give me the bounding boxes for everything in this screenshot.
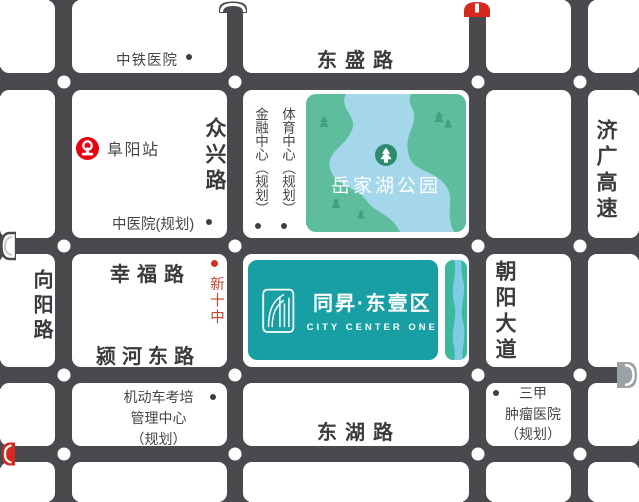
poi-dot-tcm xyxy=(206,219,212,225)
city-block xyxy=(0,383,55,446)
intersection-dot xyxy=(57,368,70,381)
intersection-dot xyxy=(573,447,586,460)
park-lake-graphic xyxy=(306,94,466,232)
poi-vehicle-center-line2: 管理中心 xyxy=(98,408,219,429)
poi-tumor-hospital-line2: 肿瘤医院 xyxy=(497,404,569,425)
toll-gate-dark-icon xyxy=(217,0,249,13)
poi-fuyang-station: 阜阳站 xyxy=(76,136,160,160)
intersection-dot xyxy=(228,239,241,252)
intersection-dot xyxy=(57,239,70,252)
yuejiahu-park: 岳家湖公园 xyxy=(306,94,466,232)
city-block xyxy=(0,0,55,73)
project-name-cn: 同昇·东壹区 xyxy=(307,287,438,316)
intersection-dot xyxy=(471,75,484,88)
city-block xyxy=(0,462,55,502)
poi-vehicle-center-line1: 机动车考培 xyxy=(98,387,219,408)
city-block xyxy=(588,0,639,73)
road-label-jiguang: 济广高速 xyxy=(590,119,620,223)
road-label-dongsheng: 东盛路 xyxy=(317,44,401,73)
road-label-chaoyang: 朝阳大道 xyxy=(489,260,519,364)
poi-dot-sports xyxy=(281,223,287,229)
intersection-dot xyxy=(471,447,484,460)
poi-dot-xinshizhong xyxy=(211,260,218,267)
intersection-dot xyxy=(573,239,586,252)
road-label-xingfu: 幸福路 xyxy=(110,258,191,287)
intersection-dot xyxy=(228,368,241,381)
poi-financial-center: 金融中心（规划） xyxy=(250,107,270,215)
city-block xyxy=(486,0,571,73)
intersection-dot xyxy=(57,75,70,88)
city-block xyxy=(486,90,571,238)
project-name: 同昇·东壹区 CITY CENTER ONE xyxy=(307,287,438,333)
city-block xyxy=(486,462,571,502)
poi-tumor-hospital: 三甲 肿瘤医院 （规划） xyxy=(497,383,569,445)
poi-xinshizhong: 新十中 xyxy=(206,276,227,326)
road-label-zhongxing: 众兴路 xyxy=(199,117,229,195)
poi-tumor-hospital-line3: （规划） xyxy=(497,424,569,445)
poi-vehicle-center: 机动车考培 管理中心 （规划） xyxy=(98,387,219,450)
poi-tcm-hospital: 中医院(规划) xyxy=(112,213,194,234)
city-block xyxy=(588,462,639,502)
intersection-dot xyxy=(573,368,586,381)
poi-sports-center: 体育中心（规划） xyxy=(277,107,297,215)
location-map: 岳家湖公园 同昇·东壹区 CITY CENTER ONE xyxy=(0,0,639,502)
toll-gate-red-top-icon xyxy=(462,0,492,17)
intersection-dot xyxy=(471,239,484,252)
project-logo-box: 同昇·东壹区 CITY CENTER ONE xyxy=(245,257,441,363)
road-label-donghu: 东湖路 xyxy=(317,416,401,445)
toll-gate-red-left-icon xyxy=(0,441,15,467)
poi-fuyang-station-label: 阜阳站 xyxy=(107,136,160,160)
city-block xyxy=(243,462,469,502)
intersection-dot xyxy=(471,368,484,381)
city-block xyxy=(588,383,639,446)
toll-gate-gray-right-icon xyxy=(617,360,639,390)
project-name-en: CITY CENTER ONE xyxy=(307,322,438,333)
railway-logo-icon xyxy=(76,137,99,160)
city-block xyxy=(588,254,639,367)
road-label-yinghedong: 颍河东路 xyxy=(96,340,200,369)
road-label-xiangyang: 向阳路 xyxy=(27,269,56,344)
poi-tumor-hospital-line1: 三甲 xyxy=(497,383,569,404)
poi-dot-financial xyxy=(255,223,261,229)
park-name: 岳家湖公园 xyxy=(306,171,466,198)
poi-dot-vehicle-center xyxy=(210,394,216,400)
poi-vehicle-center-line3: （规划） xyxy=(98,429,219,450)
building-logo-icon xyxy=(262,281,295,339)
city-block xyxy=(0,90,55,238)
river-strip-graphic xyxy=(443,258,469,362)
intersection-dot xyxy=(57,447,70,460)
intersection-dot xyxy=(228,75,241,88)
city-block xyxy=(72,462,227,502)
poi-dot-zhongtie xyxy=(186,54,192,60)
toll-gate-light-left-icon xyxy=(0,231,16,261)
intersection-dot xyxy=(228,447,241,460)
intersection-dot xyxy=(573,75,586,88)
poi-zhongtie-hospital: 中铁医院 xyxy=(116,49,178,70)
